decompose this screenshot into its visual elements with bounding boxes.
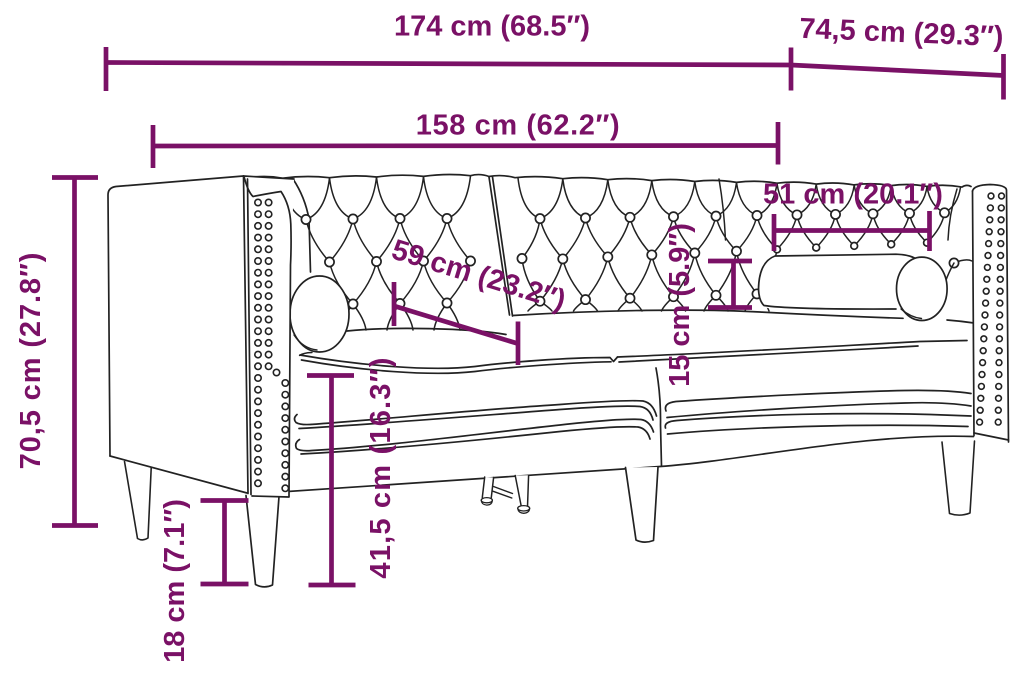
svg-text:174 cm (68.5″): 174 cm (68.5″) <box>394 11 590 43</box>
svg-text:70,5 cm (27.8″): 70,5 cm (27.8″) <box>15 252 47 470</box>
svg-text:41,5 cm (16.3″): 41,5 cm (16.3″) <box>365 356 397 578</box>
svg-text:158 cm (62.2″): 158 cm (62.2″) <box>416 110 620 142</box>
svg-text:51 cm (20.1″): 51 cm (20.1″) <box>763 179 943 211</box>
svg-text:18 cm (7.1″): 18 cm (7.1″) <box>159 499 191 663</box>
svg-text:15 cm (5.9″): 15 cm (5.9″) <box>664 223 696 387</box>
